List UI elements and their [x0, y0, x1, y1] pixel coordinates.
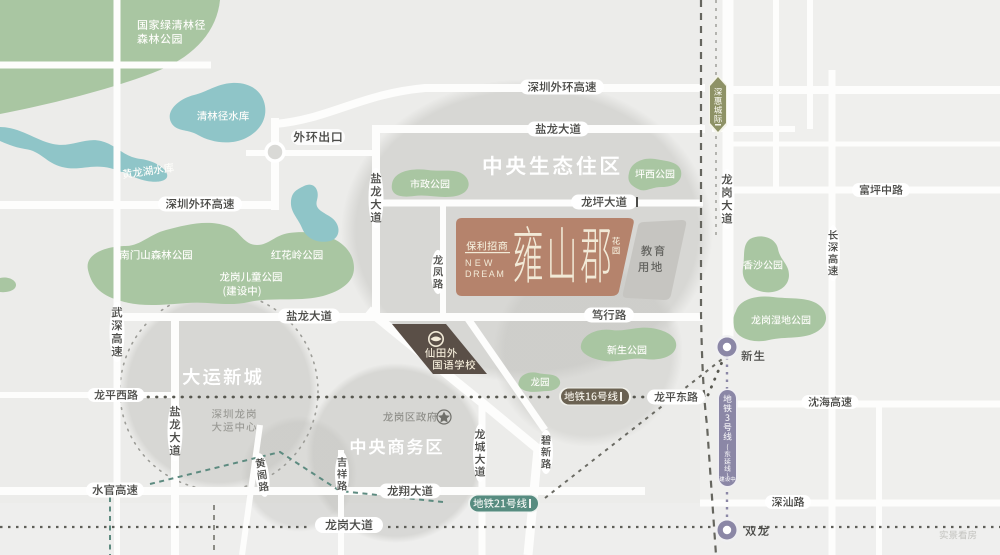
svg-text:NEW: NEW	[465, 258, 496, 268]
svg-text:DREAM: DREAM	[465, 269, 506, 279]
